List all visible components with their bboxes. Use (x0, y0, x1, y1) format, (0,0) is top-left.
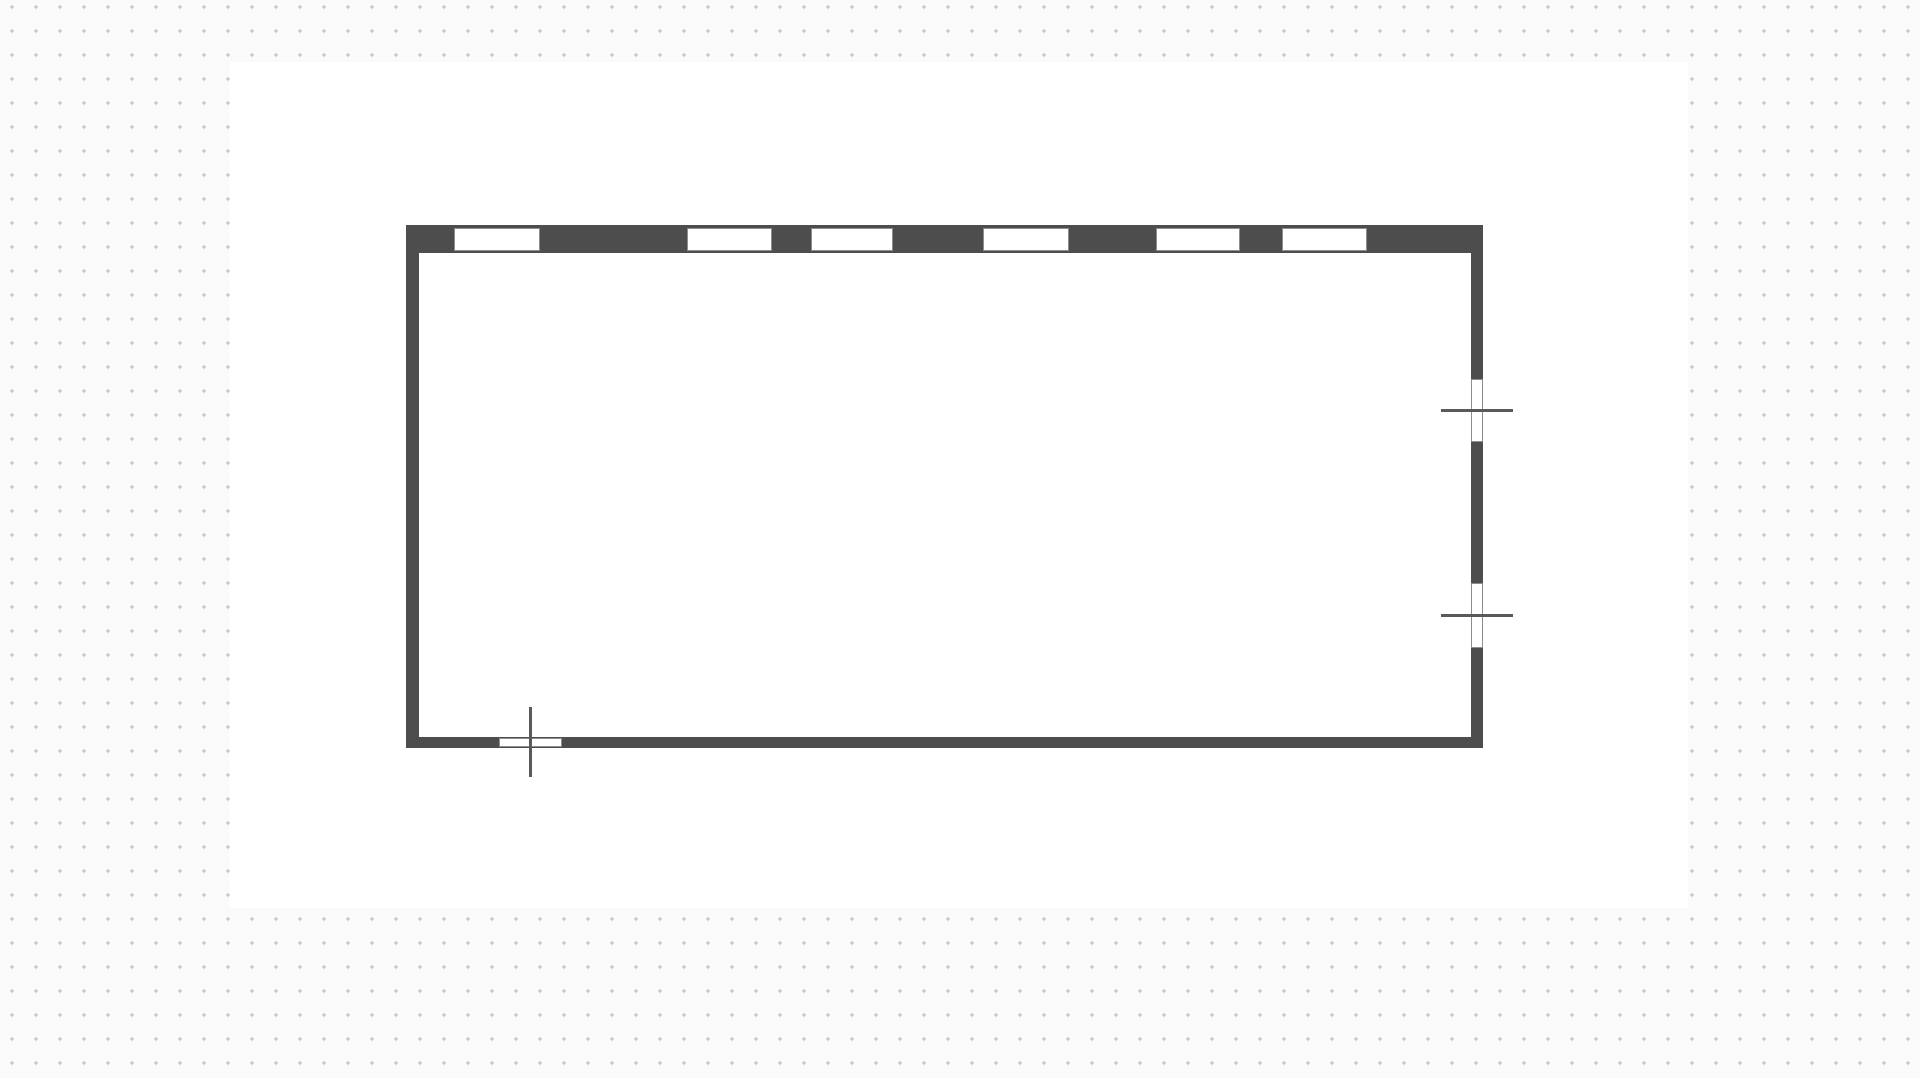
window-top-2[interactable] (687, 228, 772, 251)
window-center-marker-icon (1441, 409, 1513, 412)
canvas-sheet[interactable] (230, 62, 1688, 908)
window-top-6[interactable] (1282, 228, 1367, 251)
window-center-marker-icon (529, 707, 532, 777)
window-top-1[interactable] (454, 228, 540, 251)
window-center-marker-icon (1441, 614, 1513, 617)
window-top-3[interactable] (811, 228, 893, 251)
window-top-5[interactable] (1156, 228, 1240, 251)
wall-bottom[interactable] (406, 737, 1483, 748)
window-top-4[interactable] (983, 228, 1069, 251)
wall-left[interactable] (406, 225, 419, 748)
wall-right[interactable] (1471, 225, 1483, 748)
canvas-viewport[interactable] (0, 0, 1920, 1078)
